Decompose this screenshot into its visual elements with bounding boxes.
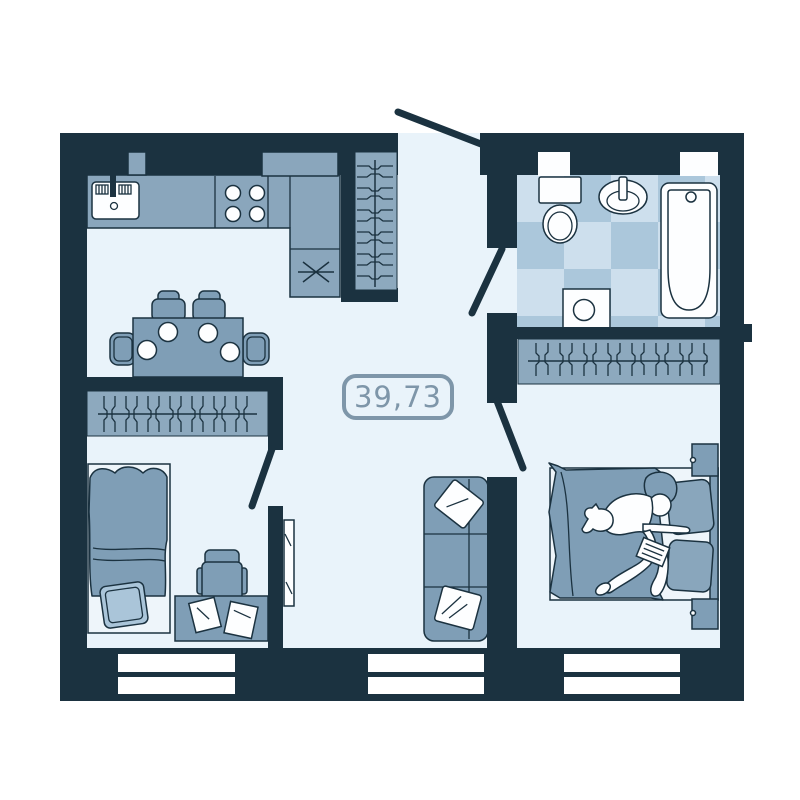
wardrobe-left	[87, 391, 268, 436]
floor-plan-page: 39,73	[0, 0, 800, 800]
desk-chair-icon	[197, 550, 247, 600]
wardrobe-right	[518, 339, 720, 384]
dining-table-icon	[133, 318, 243, 377]
mirror-icon	[284, 520, 294, 606]
single-bed-icon	[88, 464, 170, 633]
bathtub-icon	[661, 183, 717, 318]
area-label: 39,73	[342, 374, 454, 420]
entry-wardrobe-icon	[355, 152, 397, 290]
washing-machine-icon	[563, 289, 610, 330]
sofa-icon	[424, 477, 488, 641]
